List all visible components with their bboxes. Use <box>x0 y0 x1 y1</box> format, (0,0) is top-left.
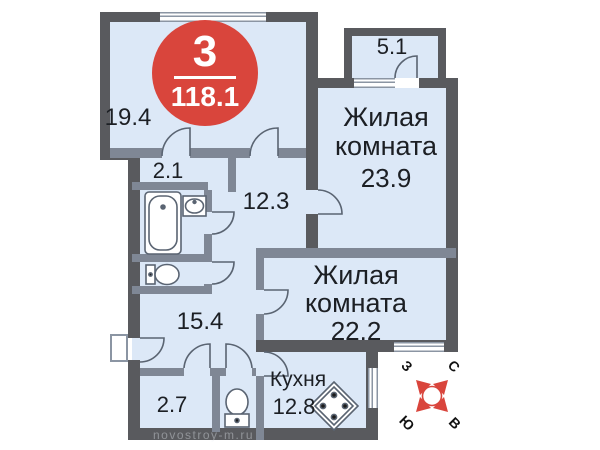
floor-plan: 19.4 2.1 12.3 15.4 2.7 5.1 Жилая комната… <box>0 0 600 450</box>
room-area-label: 23.9 <box>316 163 456 194</box>
sink-icon <box>183 196 206 216</box>
door-arc <box>212 262 234 284</box>
bathtub-icon <box>145 192 181 254</box>
room-name-label: Кухня <box>258 368 338 392</box>
room-area-label: 2.1 <box>140 158 196 184</box>
room-name-label: комната <box>266 288 446 319</box>
room-area-label: 12.8 <box>258 394 330 420</box>
door-arc <box>184 344 210 368</box>
apartment-badge: 3 118.1 <box>152 20 258 126</box>
room-area-label: 19.4 <box>96 104 160 132</box>
watermark: novostroy-m.ru <box>153 428 254 442</box>
door-arc <box>250 128 278 156</box>
toilet-icon <box>146 265 179 285</box>
room-area-label: 15.4 <box>168 308 232 336</box>
room-area-label: 2.7 <box>140 392 204 418</box>
toilet-icon <box>225 389 249 427</box>
door-arc <box>140 338 164 362</box>
badge-divider <box>174 76 236 79</box>
compass-rose <box>416 380 448 412</box>
room-area-label: 22.2 <box>266 316 446 347</box>
door-arc <box>226 344 252 368</box>
total-area: 118.1 <box>152 82 258 112</box>
rooms-count: 3 <box>152 29 258 75</box>
door-arc <box>212 212 234 234</box>
room-name-label: комната <box>316 131 456 162</box>
door-arc <box>162 128 190 156</box>
room-area-label: 5.1 <box>360 34 424 60</box>
room-name-label: Жилая <box>266 260 446 291</box>
room-name-label: Жилая <box>316 102 456 133</box>
room-area-label: 12.3 <box>234 188 298 216</box>
